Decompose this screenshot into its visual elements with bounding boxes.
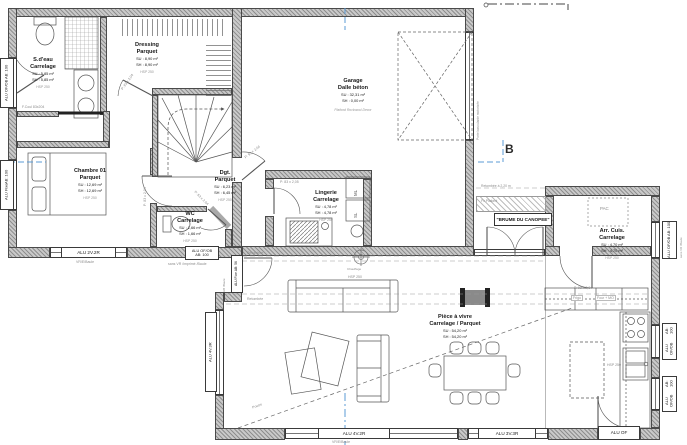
retombee-long-label: Retombée à 2,20 m: [481, 184, 511, 188]
wall-stairs-west: [152, 95, 158, 177]
room-label-lingerie: LingerieCarrelage SU : 4,78 m²SH : 4,78 …: [296, 190, 356, 222]
wall-lingerie-right: [363, 179, 372, 246]
door-label-dressing: P: 83 x 2,04: [120, 73, 134, 91]
hsp-hall-label: HSP 250: [348, 275, 362, 279]
wall-arrcuis-bottom-1: [545, 246, 560, 256]
wall-living-west-1: [215, 292, 224, 310]
wall-chambre-east-2: [150, 203, 157, 247]
staircase: [158, 95, 232, 177]
wall-lingerie-left-1: [265, 179, 274, 189]
room-label-arrcuis: Arr. Cuis.Carrelage SU : 4,70 m²SH : 4,7…: [582, 228, 642, 260]
wall-lingerie-left-2: [265, 216, 274, 246]
beam-diagonal: [238, 308, 572, 428]
sofa-side: [357, 335, 389, 402]
wall-entry-corner: [224, 292, 242, 302]
window-living-small-label: ALU 3V.3R: [478, 428, 536, 439]
wall-right-3: [651, 358, 660, 378]
chauffage-label: Chauffage: [347, 267, 361, 271]
garage-door-note: Porte basculante motorisée: [476, 44, 480, 140]
wall-living-bottom-3: [548, 428, 598, 440]
floor-plan: ALU OF/OBAB: 100 ALU FixeAB: 100 ALU 2V.…: [0, 0, 687, 445]
retombee-hall-label: Retombée: [247, 251, 263, 255]
section-lines: [0, 8, 503, 445]
room-label-dgt: Dgt.Parquet SU : 6,23 m²SH : 6,45 m² HSP…: [196, 170, 254, 202]
toilet-tank: [34, 17, 56, 25]
door-arrcuis: [560, 256, 592, 288]
wall-living-bottom-2: [458, 428, 468, 440]
retombee-living-label: Retombée: [247, 297, 263, 301]
coffee-tables: [285, 332, 349, 394]
pac-label: PAC: [600, 206, 609, 211]
window-living-main-sub: VR/E/Baule: [332, 440, 350, 444]
sofa-main: [288, 280, 398, 312]
wall-living-bottom-1: [215, 428, 285, 440]
window-arrcuis-right: [651, 222, 660, 258]
wall-garage-bottom: [242, 246, 474, 256]
wall-divider-garage-1: [232, 8, 242, 158]
wall-sdeau-east: [100, 17, 107, 115]
cooktop: [623, 314, 648, 342]
window-arrcuis-right-sub: sans VR /Baule: [679, 224, 683, 258]
wall-bed-bottom-1: [8, 247, 50, 258]
door-label-garage-service: P: 93 x 2,04: [244, 145, 261, 160]
door-kitchen-exterior: [598, 396, 630, 428]
dressing-wardrobe-hatch-top: [122, 19, 226, 36]
window-kitchen-right-1-label: ALU OF/OBAB: 100: [662, 323, 677, 360]
vmc-symbol: [351, 225, 363, 237]
structural-post: [460, 288, 490, 307]
ml-label: ML: [353, 180, 358, 196]
section-marker-b: B: [505, 142, 514, 156]
dining-set: [429, 342, 520, 404]
window-entry-sub: HB /Baule: [222, 258, 226, 292]
door-label-lingerie: P: 83 x 2,05: [280, 180, 299, 184]
window-living-left-label: ALU 4V.3R: [205, 312, 217, 392]
sink: [623, 348, 648, 380]
window-kitchen-right-2-label: ALU OF/OBAB: 100: [662, 376, 677, 412]
wall-wing-top: [545, 186, 660, 196]
pac-unit: [588, 198, 628, 226]
room-label-chambre: Chambre 01Parquet SU : 12,69 m²SH : 12,6…: [60, 168, 120, 200]
wall-left-2: [8, 108, 17, 160]
hsp-kitchen-label: HSP 250: [607, 363, 621, 367]
wall-garage-right-1: [465, 8, 474, 32]
wall-living-bottom-4: [640, 428, 660, 440]
four-label: Four + MO: [595, 295, 616, 301]
wall-lingerie-top: [265, 170, 372, 179]
floor-boundary-line: [545, 256, 546, 428]
window-left-mid-label: ALU FixeAB: 100: [0, 160, 14, 210]
french-bay: [474, 249, 545, 256]
door-entry: [244, 258, 272, 286]
window-kitchen-right-1: [651, 325, 660, 358]
room-label-wc: WCCarrelage SU : 1,66 m²SH : 1,66 m² HSP…: [160, 211, 220, 243]
door-label-sliding-bath: F.Coul 83x204: [22, 105, 44, 109]
room-label-garage: GarageDalle béton SU : 32,31 m²SH : 0,00…: [323, 78, 383, 112]
wall-right-1: [651, 196, 660, 222]
toilet-bowl: [36, 23, 54, 45]
window-left-top-label: ALU OF/OBAB: 100: [0, 58, 14, 108]
kitchen-island: [570, 342, 604, 398]
window-living-main-label: ALU 4V.2R: [318, 428, 390, 439]
window-entry-label: ALU Fixe AB: 56: [231, 255, 243, 293]
kitchen-counters: [545, 288, 650, 428]
wall-left-1: [8, 8, 17, 58]
wall-right-4: [651, 410, 660, 428]
water-heater: [290, 221, 318, 243]
door-label-chambre: P: 83 x 2,04: [143, 176, 147, 206]
window-kitchen-right-2: [651, 378, 660, 410]
window-arrcuis-right-label: ALU OF/OBAB: 100: [662, 221, 677, 259]
garage-parking-zone: [398, 32, 472, 140]
wall-sdeau-south: [17, 111, 59, 117]
door-kitchen-exterior-label: ALU OF: [598, 426, 640, 440]
dining-table: [444, 356, 506, 390]
garage-door-opening: [465, 32, 474, 140]
boundary-line: [484, 3, 568, 10]
wall-garage-right-2: [465, 140, 474, 256]
room-label-dressing: DressingParquet SU : 8,90 m²SH : 8,90 m²…: [117, 42, 177, 74]
window-bed-small-sub: sans VR /imprimé /Baule: [168, 262, 207, 266]
sl-label: SL: [353, 202, 358, 218]
vanity: [74, 70, 98, 118]
room-label-piece-a-vivre: Pièce à vivreCarrelage / Parquet SU : 54…: [420, 314, 490, 339]
room-label-sdeau: S.d'eauCarrelage SU : 5,85 m²SH : 5,85 m…: [13, 57, 73, 89]
window-bed-main-label: ALU 2V.2R: [61, 247, 116, 258]
wall-bed-bottom-2: [127, 247, 187, 258]
wall-right-2: [651, 258, 660, 325]
wall-chambre-north: [17, 141, 109, 148]
wall-wc-east: [225, 229, 232, 247]
dressing-wardrobe-hatch-right: [206, 42, 231, 96]
window-bed-main-sub: VR/E/Baule: [76, 260, 94, 264]
door-label-arrcuis: P. 93 x 2,04: [574, 286, 592, 290]
fx-plafond-label: Fx Plafond: [481, 199, 497, 203]
frigo-label: Frigo: [571, 295, 583, 301]
project-name-box: "BRUME DU CANOPEE": [494, 213, 552, 226]
window-bed-small-label: ALU OF/OBAB: 100: [185, 246, 219, 260]
poutre-label: Poutre: [252, 402, 263, 409]
